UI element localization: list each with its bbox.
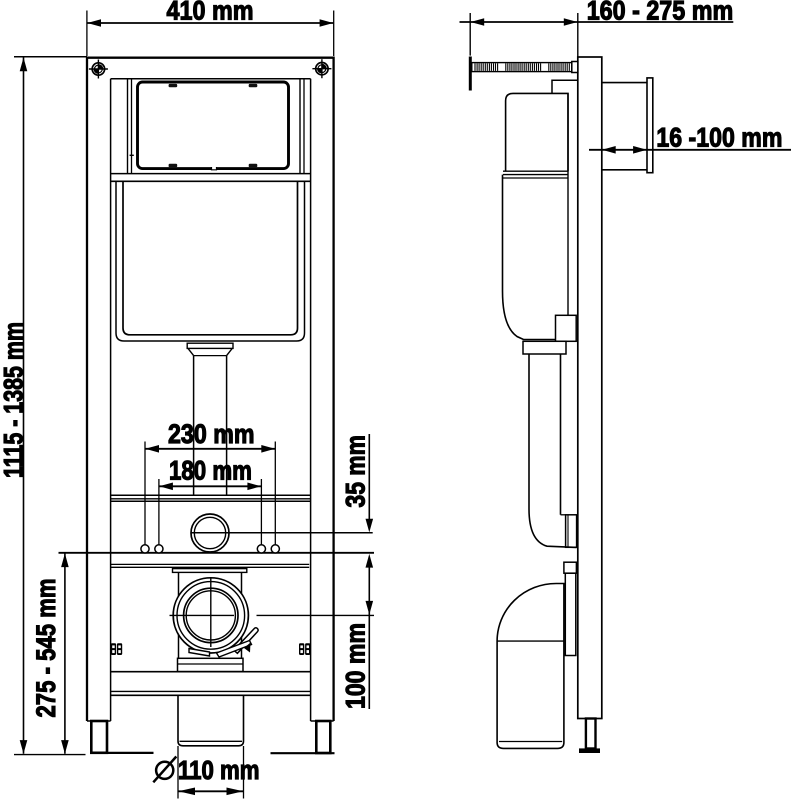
svg-text:35 mm: 35 mm [341, 435, 371, 508]
svg-text:180 mm: 180 mm [169, 456, 252, 486]
svg-text:110 mm: 110 mm [178, 757, 260, 785]
svg-text:230 mm: 230 mm [168, 419, 255, 449]
svg-text:275 - 545 mm: 275 - 545 mm [31, 579, 61, 718]
svg-text:100 mm: 100 mm [341, 623, 371, 709]
svg-text:16 -100 mm: 16 -100 mm [656, 123, 782, 153]
svg-text:160 - 275 mm: 160 - 275 mm [587, 0, 734, 26]
svg-text:1115 - 1385 mm: 1115 - 1385 mm [0, 322, 29, 478]
svg-text:410 mm: 410 mm [167, 0, 254, 26]
